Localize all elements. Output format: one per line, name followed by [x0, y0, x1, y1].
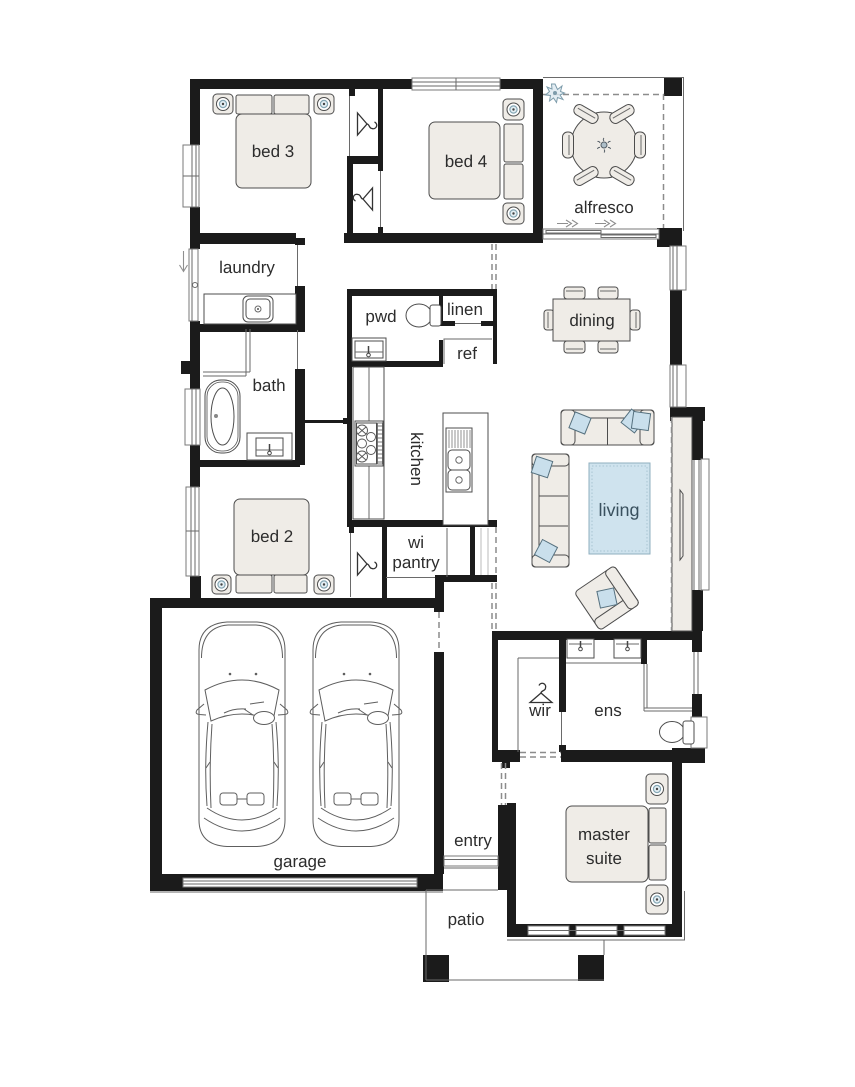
svg-text:garage: garage	[274, 852, 327, 871]
svg-text:suite: suite	[586, 849, 622, 868]
svg-text:living: living	[598, 500, 639, 520]
svg-text:wi: wi	[407, 533, 424, 552]
svg-text:patio: patio	[448, 910, 485, 929]
svg-text:bath: bath	[252, 376, 285, 395]
svg-text:pantry: pantry	[392, 553, 440, 572]
svg-text:bed 3: bed 3	[252, 142, 295, 161]
svg-text:master: master	[578, 825, 630, 844]
svg-text:alfresco: alfresco	[574, 198, 634, 217]
svg-text:bed 2: bed 2	[251, 527, 294, 546]
svg-text:ens: ens	[594, 701, 621, 720]
svg-text:entry: entry	[454, 831, 492, 850]
svg-text:linen: linen	[447, 300, 483, 319]
svg-text:wir: wir	[528, 701, 551, 720]
svg-text:pwd: pwd	[365, 307, 396, 326]
svg-text:dining: dining	[569, 311, 614, 330]
svg-text:laundry: laundry	[219, 258, 275, 277]
svg-text:ref: ref	[457, 344, 477, 363]
svg-text:bed 4: bed 4	[445, 152, 488, 171]
svg-text:kitchen: kitchen	[407, 432, 426, 486]
